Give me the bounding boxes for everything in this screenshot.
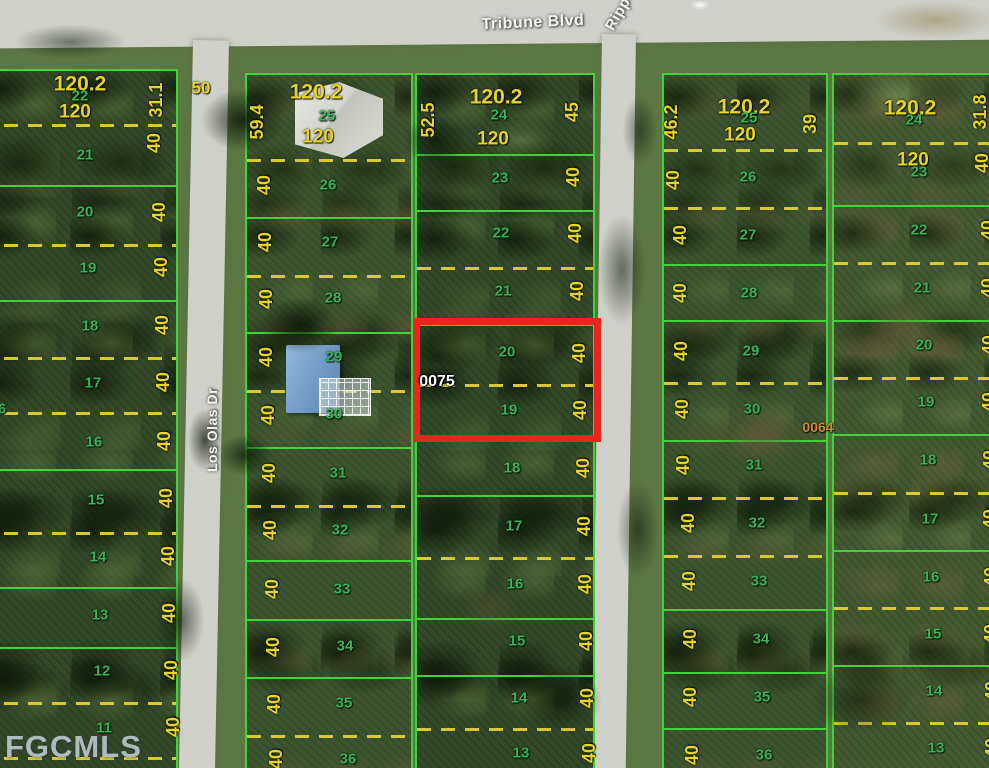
lot-boundary-solid bbox=[664, 609, 826, 611]
lot-boundary-dashed bbox=[834, 722, 989, 725]
lot-number: 13 bbox=[928, 741, 945, 756]
dimension-label: 40 bbox=[673, 399, 691, 419]
lot-number: 29 bbox=[743, 344, 760, 359]
lot-number: 13 bbox=[513, 746, 530, 761]
lot-number: 15 bbox=[509, 634, 526, 649]
lot-boundary-solid bbox=[664, 320, 826, 322]
lot-boundary-solid bbox=[417, 618, 593, 620]
lot-number: 29 bbox=[326, 350, 343, 365]
lot-number: 16 bbox=[923, 570, 940, 585]
lot-boundary-solid bbox=[247, 677, 411, 679]
lot-boundary-dashed bbox=[664, 207, 826, 210]
lot-number: 34 bbox=[337, 639, 354, 654]
lot-number: 25 bbox=[319, 109, 336, 124]
dimension-label: 40 bbox=[982, 624, 989, 644]
dimension-label: 40 bbox=[564, 167, 582, 187]
lot-boundary-dashed bbox=[0, 702, 176, 705]
lot-boundary-solid bbox=[0, 185, 176, 187]
dimension-label: 40 bbox=[980, 335, 989, 355]
dimension-label: 40 bbox=[255, 175, 273, 195]
dimension-label: 40 bbox=[671, 225, 689, 245]
lot-boundary-dashed bbox=[834, 377, 989, 380]
lot-boundary-solid bbox=[834, 434, 989, 436]
lot-number: 18 bbox=[82, 319, 99, 334]
dimension-label: 40 bbox=[570, 343, 588, 363]
lot-boundary-dashed bbox=[0, 124, 176, 127]
dimension-label: 40 bbox=[664, 170, 682, 190]
lot-number: 16 bbox=[507, 577, 524, 592]
mls-watermark: FGCMLS bbox=[5, 729, 142, 765]
dimension-label: 40 bbox=[577, 631, 595, 651]
lot-number: 31 bbox=[330, 466, 347, 481]
dimension-label: 40 bbox=[261, 520, 279, 540]
lot-number: 23 bbox=[492, 171, 509, 186]
dimension-label: 40 bbox=[159, 546, 177, 566]
lot-number: 35 bbox=[336, 696, 353, 711]
lot-boundary-dashed bbox=[417, 728, 593, 731]
lot-boundary-solid bbox=[834, 205, 989, 207]
lot-boundary-solid bbox=[664, 672, 826, 674]
dimension-label: 40 bbox=[580, 743, 598, 763]
lot-number: 14 bbox=[926, 684, 943, 699]
dimension-label: 40 bbox=[267, 749, 285, 768]
dimension-label: 40 bbox=[979, 220, 989, 240]
lot-boundary-solid bbox=[0, 647, 176, 649]
dimension-label: 40 bbox=[264, 637, 282, 657]
lot-number: 27 bbox=[740, 228, 757, 243]
lot-boundary-dashed bbox=[0, 244, 176, 247]
lot-boundary-dashed bbox=[0, 412, 176, 415]
dimension-label: 40 bbox=[257, 289, 275, 309]
lot-boundary-dashed bbox=[247, 505, 411, 508]
dimension-label: 40 bbox=[575, 516, 593, 536]
lot-boundary-dashed bbox=[417, 557, 593, 560]
aerial-parcel-map: FGCMLS 120.22212031.14050212019181716151… bbox=[0, 0, 989, 768]
dimension-label: 40 bbox=[263, 579, 281, 599]
lot-number: 6 bbox=[0, 402, 6, 417]
dimension-label: 40 bbox=[256, 232, 274, 252]
dimension-label: 40 bbox=[983, 681, 989, 701]
dimension-label: 40 bbox=[982, 567, 989, 587]
lot-boundary-dashed bbox=[834, 262, 989, 265]
dimension-label: 40 bbox=[157, 488, 175, 508]
lot-number: 28 bbox=[325, 291, 342, 306]
dimension-label: 50 bbox=[192, 80, 211, 97]
lot-boundary-dashed bbox=[247, 159, 411, 162]
lot-boundary-dashed bbox=[247, 735, 411, 738]
dimension-label: 120 bbox=[59, 103, 91, 122]
lot-number: 34 bbox=[753, 632, 770, 647]
lot-number: 30 bbox=[326, 407, 343, 422]
dimension-label: 40 bbox=[981, 509, 989, 529]
lot-boundary-dashed bbox=[0, 532, 176, 535]
dimension-label: 40 bbox=[164, 717, 182, 737]
lot-number: 17 bbox=[922, 512, 939, 527]
dimension-label: 40 bbox=[259, 405, 277, 425]
lot-boundary-solid bbox=[0, 300, 176, 302]
lot-number: 14 bbox=[90, 550, 107, 565]
lot-number: 22 bbox=[911, 223, 928, 238]
dimension-label: 40 bbox=[152, 257, 170, 277]
lot-number: 14 bbox=[511, 691, 528, 706]
lot-number: 19 bbox=[918, 395, 935, 410]
lot-boundary-dashed bbox=[417, 267, 593, 270]
dimension-label: 40 bbox=[979, 278, 989, 298]
dimension-label: 40 bbox=[681, 687, 699, 707]
lot-boundary-solid bbox=[417, 495, 593, 497]
lot-boundary-dashed bbox=[0, 357, 176, 360]
lot-number: 24 bbox=[906, 113, 923, 128]
dimension-label: 40 bbox=[680, 571, 698, 591]
lot-number: 31 bbox=[746, 458, 763, 473]
dimension-label: 40 bbox=[672, 341, 690, 361]
lot-number: 20 bbox=[77, 205, 94, 220]
lot-number: 26 bbox=[320, 178, 337, 193]
dimension-label: 40 bbox=[973, 153, 989, 173]
lot-number: 26 bbox=[740, 170, 757, 185]
dimension-label: 40 bbox=[568, 281, 586, 301]
lot-number: 16 bbox=[86, 435, 103, 450]
dimension-label: 40 bbox=[980, 392, 989, 412]
lot-number: 36 bbox=[340, 752, 357, 767]
lot-number: 21 bbox=[914, 281, 931, 296]
dimension-label: 31.1 bbox=[147, 82, 165, 117]
lot-boundary-solid bbox=[247, 619, 411, 621]
lot-number: 18 bbox=[920, 453, 937, 468]
lot-boundary-solid bbox=[834, 550, 989, 552]
lot-number: 15 bbox=[925, 627, 942, 642]
parcel-reference-number: 0064 bbox=[802, 420, 833, 434]
dimension-label: 40 bbox=[674, 455, 692, 475]
dimension-label: 40 bbox=[145, 133, 163, 153]
dimension-label: 40 bbox=[574, 458, 592, 478]
lot-boundary-solid bbox=[834, 665, 989, 667]
dimension-label: 40 bbox=[150, 202, 168, 222]
lot-number: 32 bbox=[332, 523, 349, 538]
lot-boundary-solid bbox=[0, 587, 176, 589]
dimension-label: 40 bbox=[578, 688, 596, 708]
dimension-label: 59.4 bbox=[248, 104, 266, 139]
lot-number: 24 bbox=[491, 108, 508, 123]
lot-number: 35 bbox=[754, 690, 771, 705]
dimension-label: 120.2 bbox=[290, 82, 343, 103]
lot-boundary-dashed bbox=[664, 555, 826, 558]
lot-number: 30 bbox=[744, 402, 761, 417]
lot-boundary-solid bbox=[417, 154, 593, 156]
lot-number: 33 bbox=[751, 574, 768, 589]
dimension-label: 40 bbox=[260, 463, 278, 483]
lot-number: 12 bbox=[94, 664, 111, 679]
dimension-label: 40 bbox=[257, 347, 275, 367]
lot-number: 27 bbox=[322, 235, 339, 250]
lot-boundary-solid bbox=[417, 675, 593, 677]
dimension-label: 40 bbox=[683, 745, 701, 765]
dimension-label: 120 bbox=[302, 128, 334, 147]
lot-boundary-dashed bbox=[247, 275, 411, 278]
lot-boundary-solid bbox=[664, 264, 826, 266]
dimension-label: 40 bbox=[671, 283, 689, 303]
lot-boundary-dashed bbox=[664, 497, 826, 500]
lot-boundary-dashed bbox=[664, 149, 826, 152]
lot-number: 22 bbox=[493, 226, 510, 241]
dimension-label: 45 bbox=[563, 102, 581, 122]
lot-number: 20 bbox=[916, 338, 933, 353]
dimension-label: 40 bbox=[679, 513, 697, 533]
lot-number: 18 bbox=[504, 461, 521, 476]
dimension-label: 40 bbox=[981, 450, 989, 470]
lot-boundary-dashed bbox=[834, 142, 989, 145]
lot-number: 13 bbox=[92, 608, 109, 623]
lot-boundary-dashed bbox=[834, 607, 989, 610]
lot-number: 17 bbox=[506, 519, 523, 534]
lot-number: 25 bbox=[741, 111, 758, 126]
dimension-label: 40 bbox=[155, 431, 173, 451]
lot-number: 23 bbox=[911, 165, 928, 180]
dimension-label: 40 bbox=[162, 660, 180, 680]
dimension-label: 120 bbox=[477, 130, 509, 149]
dimension-label: 40 bbox=[566, 223, 584, 243]
dimension-label: 40 bbox=[160, 603, 178, 623]
lot-boundary-solid bbox=[417, 210, 593, 212]
lot-boundary-solid bbox=[664, 440, 826, 442]
dimension-label: 52.5 bbox=[419, 102, 437, 137]
parcel-reference-number: 0075 bbox=[419, 374, 455, 390]
dimension-label: 40 bbox=[571, 400, 589, 420]
lot-number: 21 bbox=[77, 148, 94, 163]
lot-boundary-solid bbox=[664, 728, 826, 730]
street-label: Los Olas Dr bbox=[204, 388, 220, 472]
dimension-label: 40 bbox=[681, 629, 699, 649]
lot-number: 15 bbox=[88, 493, 105, 508]
lot-number: 20 bbox=[499, 345, 516, 360]
lot-boundary-dashed bbox=[664, 382, 826, 385]
lot-boundary-solid bbox=[247, 560, 411, 562]
lot-boundary-solid bbox=[834, 320, 989, 322]
dimension-label: 40 bbox=[154, 372, 172, 392]
lot-boundary-solid bbox=[247, 217, 411, 219]
lot-number: 36 bbox=[756, 748, 773, 763]
dimension-label: 31.8 bbox=[971, 94, 989, 129]
lot-boundary-solid bbox=[247, 447, 411, 449]
lot-number: 17 bbox=[85, 376, 102, 391]
dimension-label: 39 bbox=[801, 114, 819, 134]
lot-number: 19 bbox=[80, 261, 97, 276]
lot-number: 19 bbox=[501, 403, 518, 418]
lot-boundary-solid bbox=[247, 332, 411, 334]
dimension-label: 40 bbox=[576, 574, 594, 594]
dimension-label: 120.2 bbox=[470, 87, 523, 108]
lot-number: 32 bbox=[749, 516, 766, 531]
lot-boundary-solid bbox=[0, 469, 176, 471]
dimension-label: 46.2 bbox=[662, 104, 680, 139]
lot-number: 28 bbox=[741, 286, 758, 301]
dimension-label: 40 bbox=[983, 738, 989, 758]
parcel-block-west bbox=[0, 69, 178, 768]
dimension-label: 120 bbox=[724, 126, 756, 145]
lot-boundary-dashed bbox=[834, 492, 989, 495]
dimension-label: 40 bbox=[153, 315, 171, 335]
lot-number: 33 bbox=[334, 582, 351, 597]
dimension-label: 40 bbox=[265, 694, 283, 714]
lot-number: 21 bbox=[495, 284, 512, 299]
